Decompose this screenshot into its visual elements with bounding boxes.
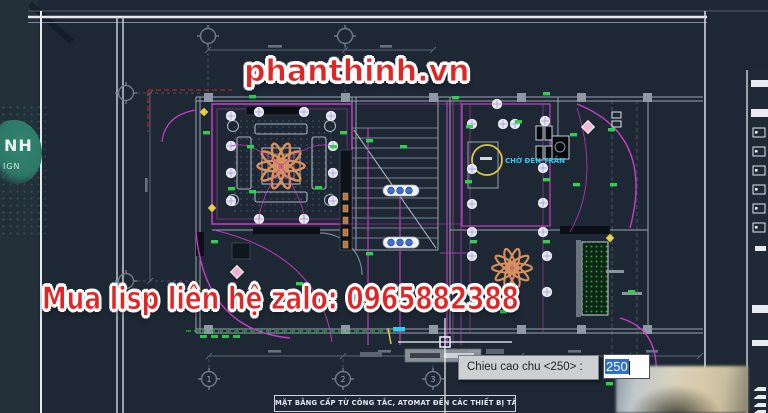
logo-text-bottom: IGN (3, 162, 21, 171)
dynamic-input-field[interactable]: 250 (603, 354, 650, 379)
text-caret (629, 361, 630, 375)
legend-panel (748, 70, 768, 413)
autocad-viewport: 1 2 3 (0, 0, 768, 413)
grid-bubble-label-1: 1 (207, 375, 212, 384)
grid-bubble-label-2: 2 (341, 375, 346, 384)
drawing-title: MẶT BẰNG CẤP TỪ CÔNG TẮC, ATOMAT ĐẾN CÁC… (274, 395, 516, 412)
dynamic-input-value: 250 (605, 359, 629, 374)
dynamic-input-prompt: Chieu cao chu <250> : (458, 355, 599, 380)
grid-bubble-label-3: 3 (431, 375, 436, 384)
logo-text-top: NH (4, 136, 33, 155)
drawing-canvas[interactable]: 1 2 3 (0, 0, 768, 413)
label-cho-den-tran: CHỜ ĐÈN TRẦN (505, 155, 565, 165)
